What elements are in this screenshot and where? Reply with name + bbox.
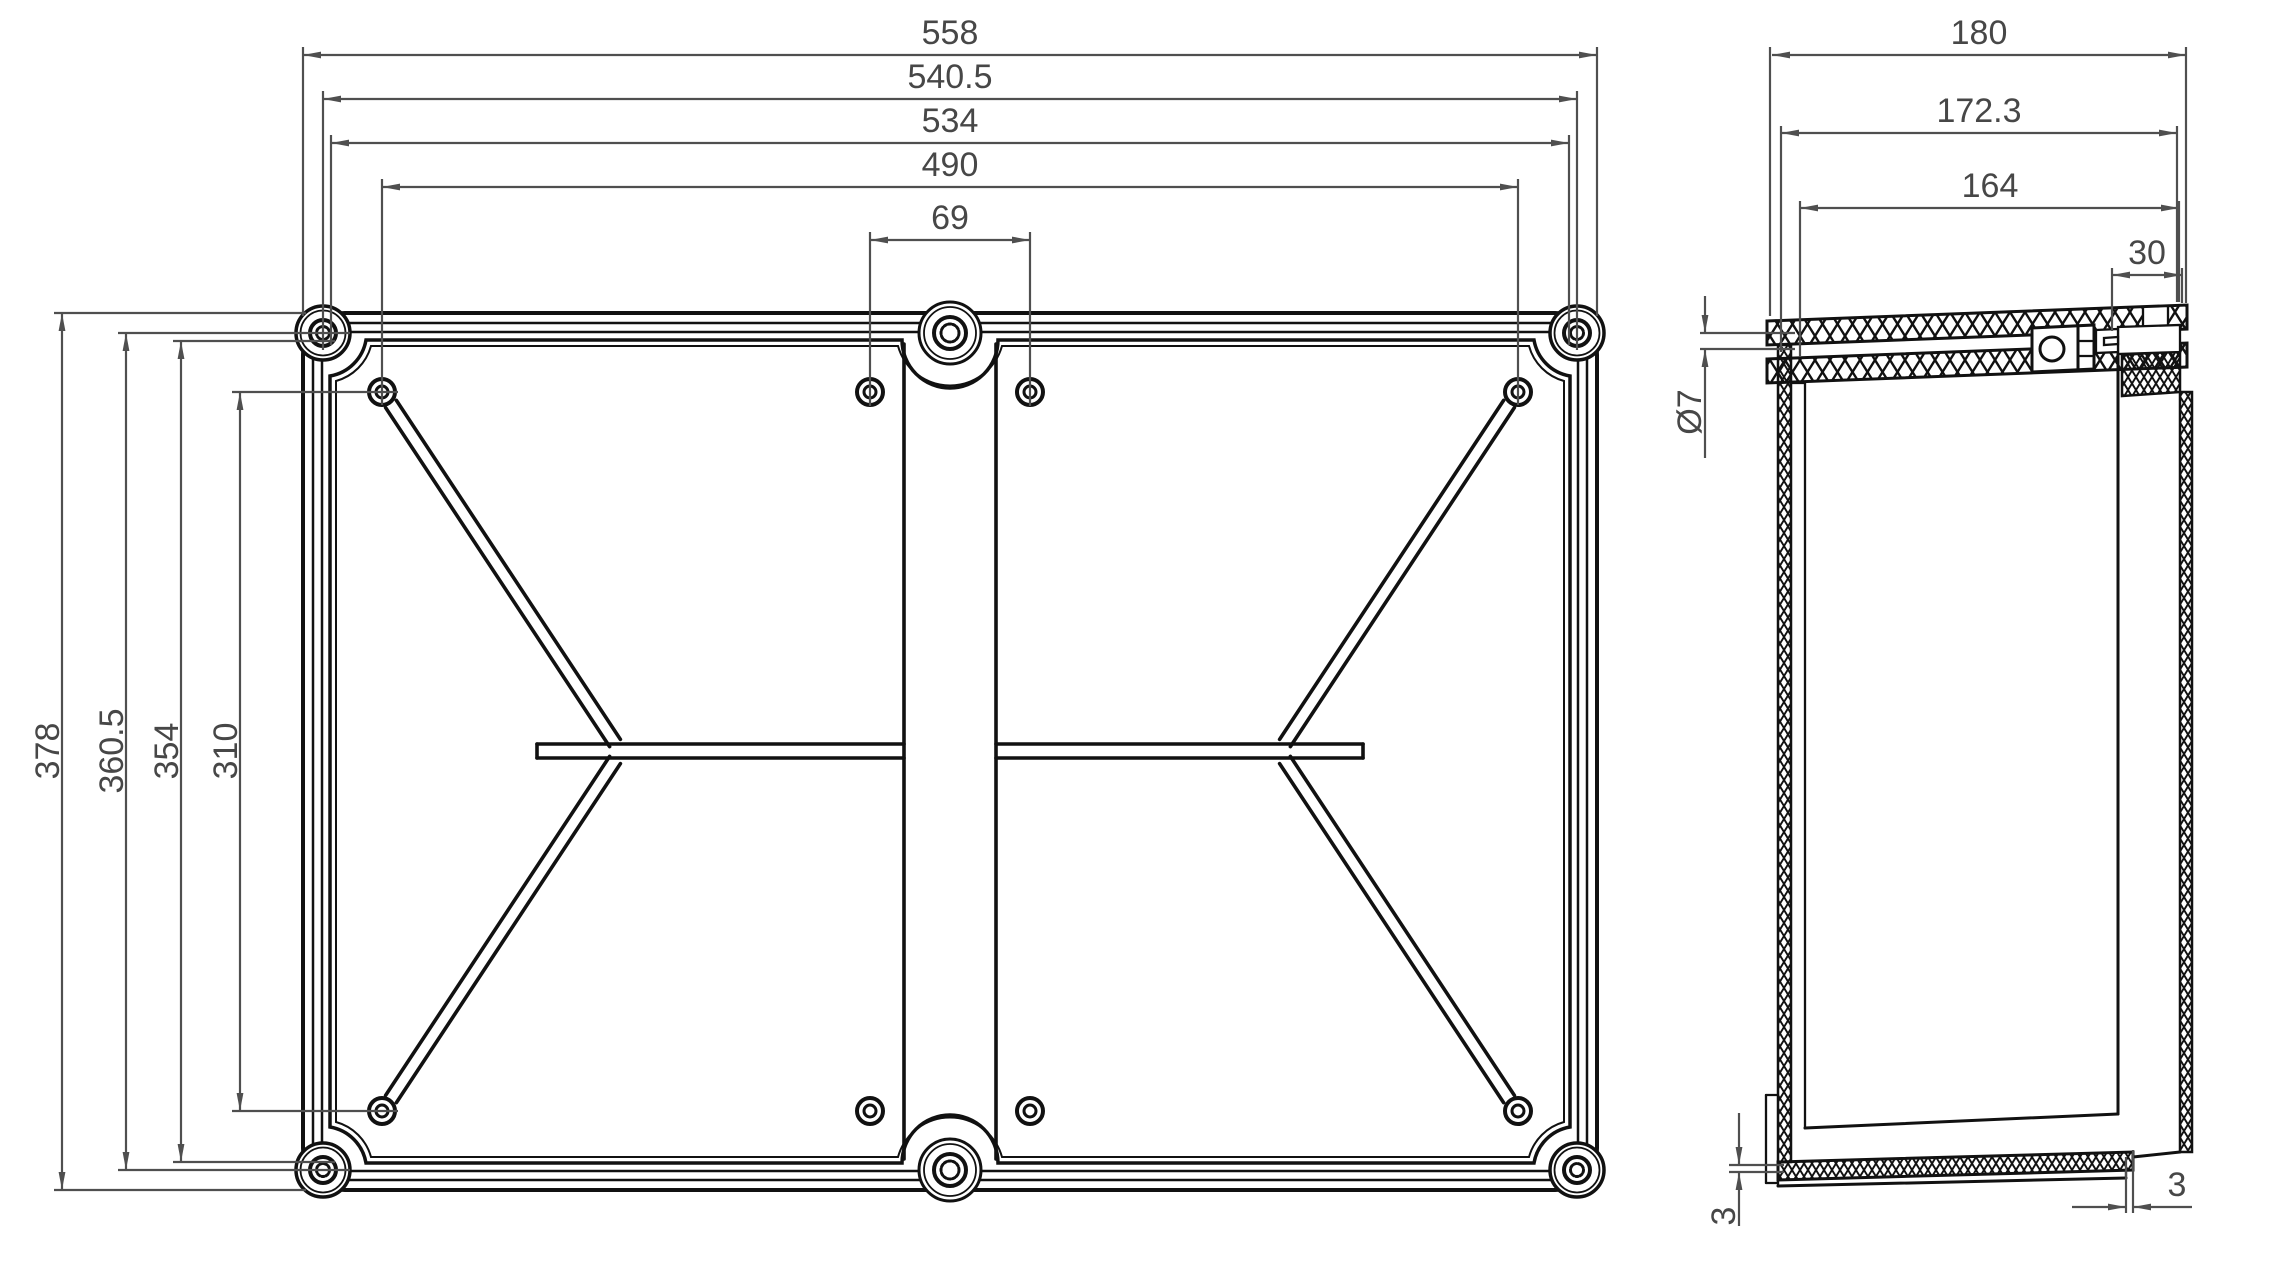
engineering-drawing: 558 540.5 534 490 69 378 360.5 354 310 1…	[0, 0, 2269, 1264]
dim-side-lid-overlap: 30	[2128, 234, 2166, 272]
mounting-holes	[369, 379, 1531, 1124]
dim-side-lid-depth: 172.3	[1936, 92, 2021, 130]
base-section	[1778, 1152, 2133, 1180]
dim-side-outer-depth: 180	[1951, 14, 2008, 52]
dim-front-inner-rim-height: 354	[148, 723, 186, 780]
dim-front-inner-rim-width: 534	[922, 102, 979, 140]
dim-side-wall-offset: 3	[2168, 1166, 2187, 1204]
dimension-arrows	[59, 52, 2186, 1211]
inner-rim-outline-2	[336, 346, 1564, 1157]
dim-front-outer-width: 558	[922, 14, 979, 52]
extension-lines	[54, 47, 2186, 1213]
box-outer-edge	[303, 313, 1597, 1190]
front-view	[296, 302, 1604, 1201]
dimension-labels: 558 540.5 534 490 69 378 360.5 354 310 1…	[29, 14, 2186, 1225]
box-rim-edge-2	[313, 323, 1587, 1180]
dim-side-body-depth: 164	[1962, 167, 2019, 205]
dim-front-center-holes-span: 69	[931, 199, 969, 237]
side-view	[1766, 305, 2192, 1186]
interior-bottom-line	[1805, 1114, 2118, 1128]
left-wall-section	[1778, 345, 1791, 1162]
flange-corner-block	[2122, 351, 2180, 396]
dim-front-screw-span-width: 540.5	[907, 58, 992, 96]
dim-front-outer-height: 378	[29, 723, 67, 780]
latch-notch	[2118, 325, 2180, 354]
inner-rim-outline	[330, 340, 1570, 1163]
drawing-canvas: 558 540.5 534 490 69 378 360.5 354 310 1…	[0, 0, 2269, 1264]
dim-side-base-lip: 3	[1705, 1207, 1743, 1226]
right-wall-section	[2180, 392, 2192, 1152]
screw-bosses	[296, 302, 1604, 1201]
right-wall-base-join	[2133, 1152, 2180, 1157]
dim-side-hole-diameter: Ø7	[1671, 389, 1709, 434]
dim-front-hole-span-width: 490	[922, 146, 979, 184]
dim-front-hole-span-height: 310	[207, 723, 245, 780]
latch-pin-bar	[2104, 337, 2118, 345]
dim-front-screw-span-height: 360.5	[93, 708, 131, 793]
box-rim-edge-3	[322, 332, 1578, 1171]
stiffening-ribs	[386, 344, 1515, 1159]
